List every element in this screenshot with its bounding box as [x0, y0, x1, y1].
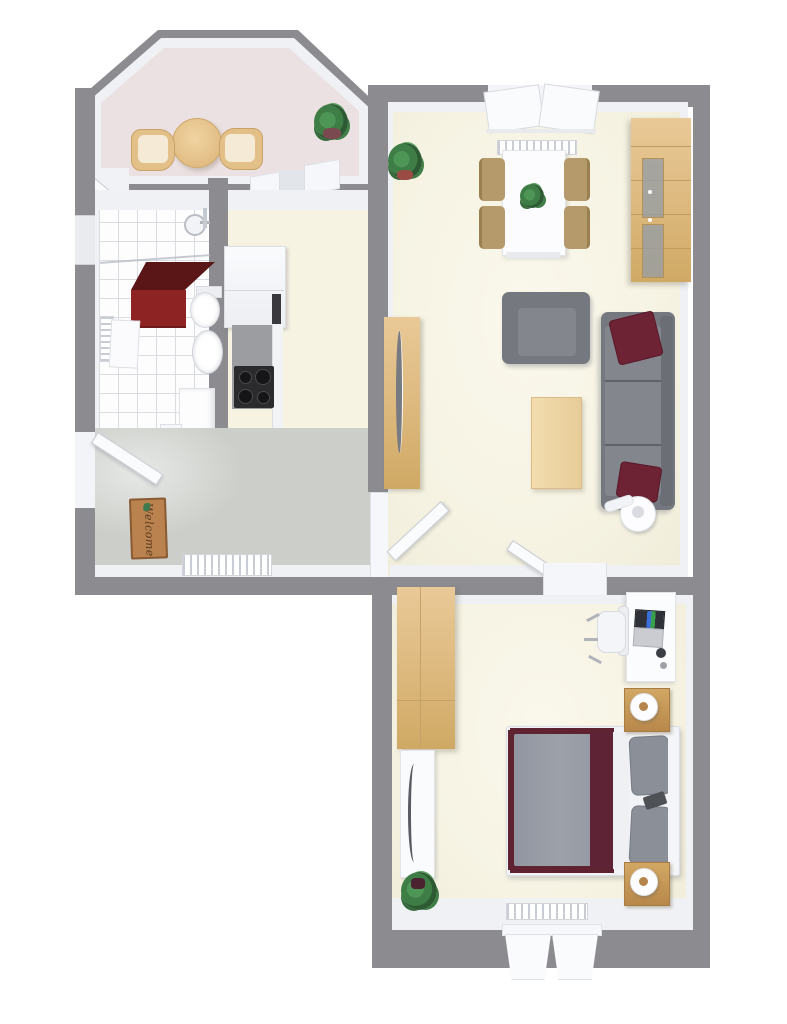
bedroom-mirror-handle	[408, 764, 420, 862]
coffee-table	[531, 397, 582, 489]
bathroom-top-face	[99, 190, 209, 210]
living-window-sill	[486, 129, 596, 133]
burner-2	[255, 369, 271, 385]
nook-plant-pot	[323, 128, 341, 139]
armchair-seat	[518, 308, 576, 356]
living-window-pane-left	[483, 84, 544, 133]
bedroom-wardrobe-divider-h	[397, 700, 455, 701]
bedroom-wardrobe	[397, 587, 455, 749]
bedroom-window-pane-left	[505, 934, 551, 980]
bathroom-wall-cabinet	[109, 319, 140, 368]
bedroom-plant-pot	[411, 878, 425, 889]
bed-headboard	[668, 728, 678, 874]
display-cabinet-glass-upper	[642, 158, 664, 218]
bed-runner	[590, 730, 614, 870]
tub-chair-left-seat	[138, 135, 168, 163]
bed-pillow-top	[628, 735, 671, 796]
bedroom-window-pane-right	[552, 934, 598, 980]
burner-1	[239, 371, 252, 384]
floor-plan: Welcome	[0, 0, 787, 1024]
bed-pillow-bottom	[628, 805, 671, 866]
hall-bottom-wall	[75, 577, 390, 595]
desk-speaker	[656, 648, 666, 658]
bedroom-left-wall	[372, 577, 392, 968]
bed-duvet	[514, 734, 592, 866]
bedroom-radiator	[506, 903, 588, 920]
bedroom-right-face	[686, 595, 693, 930]
living-wardrobe-handle	[396, 331, 403, 453]
living-corner-plant-pot	[397, 170, 413, 180]
pedestal-sink	[192, 330, 223, 374]
desk-mouse	[660, 662, 667, 669]
left-outer-wall	[75, 88, 95, 595]
hall-radiator	[182, 554, 272, 576]
built-in-oven	[272, 294, 281, 324]
right-outer-wall-upper	[693, 85, 710, 595]
display-cabinet-handle-2	[648, 218, 652, 222]
bedroom-doorway	[543, 563, 607, 595]
bed-sheet-fold	[613, 732, 629, 869]
display-cabinet-handle-1	[648, 190, 652, 194]
nightstand-bottom-lamp-center	[639, 877, 648, 886]
office-chair-seat	[597, 611, 626, 653]
left-wall-recess	[75, 215, 95, 265]
welcome-mat: Welcome	[129, 497, 168, 559]
laptop-keyboard	[633, 627, 664, 648]
shower-wall-bracket	[203, 208, 207, 228]
office-chair-caster-2	[584, 638, 598, 641]
floor-lamp-hub	[632, 506, 644, 518]
toilet-bowl	[190, 292, 220, 328]
sofa-backrest	[660, 316, 673, 506]
tub-chair-right-seat	[225, 134, 255, 162]
round-dining-table	[172, 118, 222, 168]
table-centerpiece-plant	[520, 184, 544, 208]
nightstand-top-lamp-center	[639, 702, 648, 711]
right-outer-wall-lower	[693, 595, 710, 968]
burner-3	[238, 389, 253, 404]
living-window-pane-right	[538, 83, 600, 134]
dining-chair-4	[564, 206, 590, 249]
dining-chair-2	[479, 206, 505, 249]
living-dining-table-edge	[506, 252, 560, 258]
burner-4	[257, 391, 270, 404]
dining-chair-3	[564, 158, 590, 201]
bedroom-wardrobe-divider-v	[420, 587, 421, 749]
kitchen-tall-unit-divider	[224, 290, 284, 291]
dining-chair-1	[479, 158, 505, 201]
display-cabinet-glass-lower	[642, 224, 664, 278]
laptop	[633, 609, 663, 647]
